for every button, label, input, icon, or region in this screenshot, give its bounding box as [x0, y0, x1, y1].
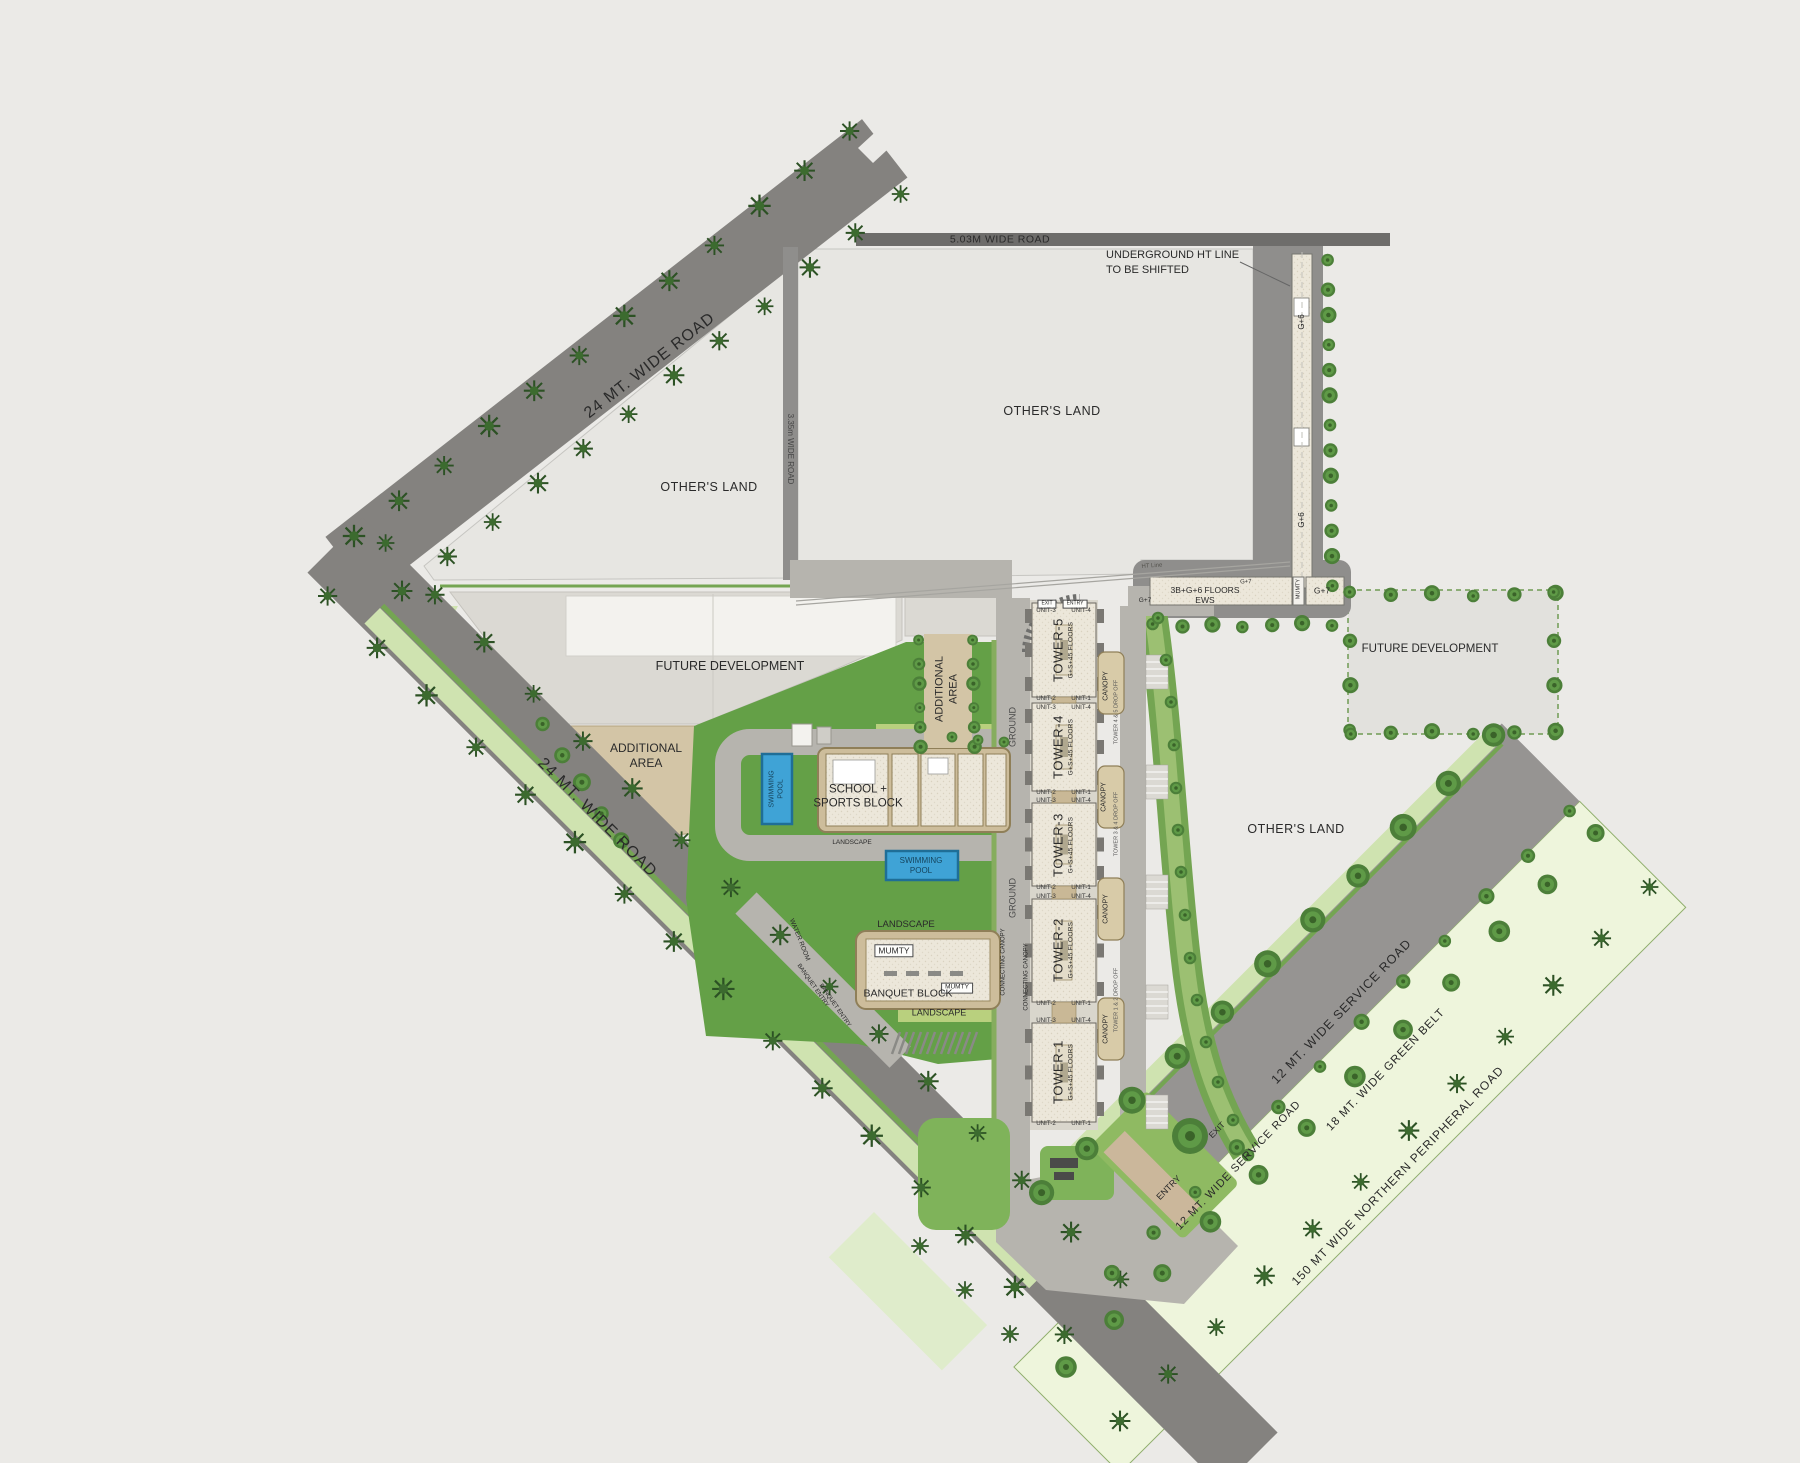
palm-tree-icon: [969, 1124, 987, 1142]
connecting-canopy-label: CONNECTING CANOPY: [1000, 928, 1008, 995]
tower-wing: [1025, 838, 1032, 852]
tower-wing: [1025, 740, 1032, 754]
tower-floors: G+S+45 FLOORS: [1068, 922, 1076, 979]
school-label: SCHOOL + SPORTS BLOCK: [813, 783, 902, 812]
tree-icon: [1055, 1356, 1077, 1378]
g7-box-label: G+7: [1314, 586, 1330, 597]
palm-tree-icon: [528, 473, 549, 494]
tree-icon: [1321, 283, 1335, 297]
tower-name: TOWER-2: [1050, 918, 1066, 982]
ground-label: GROUND: [1007, 707, 1018, 747]
palm-tree-icon: [955, 1225, 976, 1246]
tree-icon: [1179, 909, 1192, 922]
unit-label: UNIT-2: [1036, 695, 1056, 703]
ground-label: GROUND: [1007, 878, 1018, 918]
additional-area-mid-label: ADDITIONAL AREA: [933, 656, 961, 722]
tree-icon: [1507, 587, 1521, 601]
tree-icon: [1300, 907, 1325, 932]
future-development-right-parcel: [1348, 590, 1558, 734]
banquet-roof-mark: [950, 971, 963, 976]
tower-label: TOWER-1 G+S+45 FLOORS: [1050, 1040, 1075, 1104]
tree-icon: [1104, 1265, 1120, 1281]
palm-tree-icon: [756, 297, 774, 315]
tree-icon: [1439, 935, 1452, 948]
tower-wing: [1025, 1102, 1032, 1116]
tree-icon: [967, 635, 978, 646]
tree-icon: [1172, 1118, 1208, 1154]
tree-icon: [1200, 1036, 1213, 1049]
tree-icon: [912, 676, 926, 690]
tree-icon: [1324, 419, 1337, 432]
g6-lower-label: G+6: [1297, 512, 1307, 527]
tree-icon: [1249, 1165, 1269, 1185]
palm-tree-icon: [1001, 1325, 1019, 1343]
tree-icon: [1119, 1087, 1146, 1114]
palm-tree-icon: [574, 439, 593, 458]
tree-icon: [1170, 782, 1183, 795]
palm-tree-icon: [840, 121, 859, 140]
unit-label: UNIT-1: [1071, 1120, 1091, 1128]
utility-building: [792, 724, 812, 746]
tree-icon: [1467, 590, 1480, 603]
tree-icon: [1211, 1001, 1234, 1024]
tower-name: TOWER-3: [1050, 813, 1066, 877]
palm-tree-icon: [573, 732, 592, 751]
tree-icon: [1200, 1211, 1222, 1233]
tree-icon: [973, 735, 984, 746]
tree-icon: [1354, 1014, 1370, 1030]
tree-icon: [1324, 524, 1338, 538]
tower-label: TOWER-4 G+S+45 FLOORS: [1050, 715, 1075, 779]
dropoff-34-label: TOWER 3 & 4 DROP OFF: [1114, 792, 1121, 857]
additional-area-left-label: ADDITIONAL AREA: [610, 741, 682, 771]
palm-tree-icon: [1012, 1171, 1031, 1190]
tower-wing: [1025, 771, 1032, 785]
palm-tree-icon: [435, 456, 454, 475]
tower-wing: [1025, 709, 1032, 723]
tower-label: TOWER-2 G+S+45 FLOORS: [1050, 918, 1075, 982]
g7-left-label: G+7: [1139, 597, 1151, 605]
mumty-label: MUMTY: [874, 944, 913, 957]
tree-icon: [1204, 616, 1220, 632]
tree-icon: [1384, 726, 1398, 740]
pool-horizontal-label: SWIMMING POOL: [900, 856, 943, 876]
tree-icon: [1227, 1114, 1240, 1127]
south-lawn-pocket: [918, 1118, 1010, 1230]
future-dev-left-label: FUTURE DEVELOPMENT: [656, 659, 805, 675]
tree-icon: [1029, 1180, 1054, 1205]
canopy-label: CANOPY: [1103, 894, 1112, 924]
tree-icon: [1507, 725, 1521, 739]
palm-tree-icon: [800, 257, 821, 278]
tree-icon: [1424, 585, 1440, 601]
tower-wing: [1097, 1102, 1104, 1116]
landscape-label: LANDSCAPE: [912, 1007, 967, 1018]
tower-wing: [1025, 609, 1032, 623]
banquet-roof-mark: [928, 971, 941, 976]
road-503m-label: 5.03M WIDE ROAD: [950, 233, 1050, 246]
palm-tree-icon: [613, 305, 635, 327]
tower-label: TOWER-5 G+S+45 FLOORS: [1050, 618, 1075, 682]
others-land-left-label: OTHER'S LAND: [660, 480, 757, 496]
unit-label: UNIT-1: [1071, 789, 1091, 797]
play-equipment: [1054, 1172, 1074, 1180]
tree-icon: [1482, 723, 1505, 746]
unit-label: UNIT-1: [1071, 695, 1091, 703]
palm-tree-icon: [377, 534, 395, 552]
palm-tree-icon: [425, 585, 444, 604]
palm-tree-icon: [622, 778, 643, 799]
palm-tree-icon: [525, 685, 543, 703]
g6-upper-label: G+6: [1297, 314, 1307, 329]
others-land-top-label: OTHER'S LAND: [1003, 404, 1100, 420]
unit-label: UNIT-4: [1071, 607, 1091, 615]
tree-icon: [1236, 621, 1249, 634]
tower-wing: [1097, 944, 1104, 958]
parking-bay: [1146, 875, 1168, 909]
canopy-label: CANOPY: [1101, 782, 1110, 812]
tower-wing: [1097, 838, 1104, 852]
landscape-label: LANDSCAPE: [832, 839, 871, 847]
road-335m-label: 3.35m WIDE ROAD: [785, 414, 795, 485]
tree-icon: [1165, 696, 1178, 709]
tower-floors: G+S+45 FLOORS: [1068, 1044, 1076, 1101]
palm-tree-icon: [710, 331, 729, 350]
tree-icon: [1320, 307, 1336, 323]
ews-mumty-label: MUMTY: [1296, 579, 1303, 599]
palm-tree-icon: [892, 185, 910, 203]
tree-icon: [1104, 1310, 1124, 1330]
palm-tree-icon: [1641, 878, 1659, 896]
unit-label: UNIT-3: [1036, 704, 1056, 712]
g7-small-label: G+7: [1240, 579, 1252, 587]
tree-icon: [1160, 654, 1173, 667]
unit-label: UNIT-4: [1071, 797, 1091, 805]
unit-label: UNIT-1: [1071, 884, 1091, 892]
unit-label: UNIT-4: [1071, 893, 1091, 901]
tree-icon: [1146, 1225, 1160, 1239]
landscape-label: LANDSCAPE: [877, 919, 935, 931]
ews-block-label: 3B+G+6 FLOORS EWS: [1171, 585, 1240, 605]
palm-tree-icon: [659, 270, 680, 291]
dropoff-12-label: TOWER 1 & 2 DROP OFF: [1114, 968, 1121, 1033]
parking-bay: [1146, 1095, 1168, 1129]
tree-icon: [968, 702, 979, 713]
tree-icon: [1323, 443, 1337, 457]
road-503m: [856, 233, 1390, 246]
unit-label: UNIT-2: [1036, 1000, 1056, 1008]
tree-icon: [1326, 619, 1339, 632]
palm-tree-icon: [1543, 975, 1564, 996]
tree-icon: [914, 702, 925, 713]
tree-icon: [1478, 888, 1494, 904]
banquet-roof-mark: [884, 971, 897, 976]
unit-label: UNIT-2: [1036, 789, 1056, 797]
canopy-label: CANOPY: [1103, 1014, 1112, 1044]
palm-tree-icon: [812, 1078, 833, 1099]
tree-icon: [1343, 634, 1357, 648]
palm-tree-icon: [318, 586, 337, 605]
tree-icon: [947, 732, 958, 743]
tree-icon: [1323, 338, 1336, 351]
palm-tree-icon: [956, 1281, 974, 1299]
palm-tree-icon: [663, 931, 684, 952]
tree-icon: [1321, 254, 1334, 267]
tower-label: TOWER-3 G+S+45 FLOORS: [1050, 813, 1075, 877]
tree-icon: [1322, 387, 1338, 403]
tree-icon: [1184, 952, 1197, 965]
palm-tree-icon: [705, 236, 724, 255]
palm-tree-icon: [615, 884, 634, 903]
tree-icon: [1314, 1060, 1327, 1073]
parking-bay: [1146, 985, 1168, 1019]
tree-icon: [1254, 950, 1281, 977]
unit-label: UNIT-1: [1071, 1000, 1091, 1008]
tree-icon: [1424, 723, 1440, 739]
unit-label: UNIT-4: [1071, 704, 1091, 712]
tree-icon: [1175, 619, 1189, 633]
tree-icon: [1547, 586, 1560, 599]
tower-floors: G+S+45 FLOORS: [1068, 622, 1076, 679]
pool-vertical-label: SWIMMING POOL: [768, 770, 786, 807]
unit-label: UNIT-3: [1036, 607, 1056, 615]
tower-wing: [1025, 643, 1032, 657]
banquet-label: BANQUET BLOCK: [863, 987, 952, 1000]
palm-tree-icon: [770, 924, 791, 945]
palm-tree-icon: [918, 1071, 939, 1092]
tree-icon: [1396, 974, 1410, 988]
tree-icon: [1212, 1076, 1225, 1089]
utility-building: [817, 727, 831, 744]
tree-icon: [554, 747, 570, 763]
tower-wing: [1097, 982, 1104, 996]
tower-wing: [1097, 1066, 1104, 1080]
tree-icon: [1322, 363, 1336, 377]
tower-floors: G+S+45 FLOORS: [1068, 719, 1076, 776]
tower-wing: [1025, 677, 1032, 691]
school-roof-detail: [833, 760, 875, 784]
palm-tree-icon: [564, 831, 586, 853]
tower-wing: [1025, 809, 1032, 823]
canopy-label: CANOPY: [1103, 671, 1112, 701]
dropoff-45-label: TOWER 4 & 5 DROP OFF: [1114, 680, 1121, 745]
palm-tree-icon: [794, 160, 815, 181]
tree-icon: [1345, 728, 1358, 741]
tree-icon: [1538, 874, 1558, 894]
tower-floors: G+S+45 FLOORS: [1068, 817, 1076, 874]
play-equipment: [1050, 1158, 1078, 1168]
tree-icon: [1436, 771, 1461, 796]
palm-tree-icon: [570, 346, 589, 365]
tree-icon: [1075, 1137, 1098, 1160]
palm-tree-icon: [712, 978, 734, 1000]
unit-label: UNIT-2: [1036, 1120, 1056, 1128]
tree-icon: [1153, 1264, 1171, 1282]
unit-label: UNIT-3: [1036, 1017, 1056, 1025]
ht-line-label: HT Line: [1141, 563, 1162, 572]
palm-tree-icon: [524, 380, 545, 401]
palm-tree-icon: [478, 415, 500, 437]
tree-icon: [1175, 866, 1188, 879]
tree-icon: [914, 721, 927, 734]
school-block-4: [958, 754, 983, 826]
palm-tree-icon: [763, 1031, 782, 1050]
palm-tree-icon: [911, 1237, 929, 1255]
tree-icon: [535, 717, 549, 731]
palm-tree-icon: [748, 195, 770, 217]
tree-icon: [913, 740, 927, 754]
palm-tree-icon: [1061, 1222, 1082, 1243]
unit-label: UNIT-2: [1036, 884, 1056, 892]
tower-wing: [1097, 740, 1104, 754]
palm-tree-icon: [1496, 1028, 1514, 1046]
palm-tree-icon: [620, 405, 638, 423]
palm-tree-icon: [474, 632, 495, 653]
tower-name: TOWER-4: [1050, 715, 1066, 779]
palm-tree-icon: [1352, 1173, 1370, 1191]
palm-tree-icon: [912, 1178, 931, 1197]
palm-tree-icon: [1110, 1411, 1131, 1432]
tree-icon: [1346, 864, 1369, 887]
tree-icon: [1191, 994, 1204, 1007]
tree-icon: [913, 658, 926, 671]
palm-tree-icon: [721, 878, 740, 897]
tree-icon: [1152, 612, 1165, 625]
unit-label: UNIT-3: [1036, 797, 1056, 805]
tree-icon: [1298, 1119, 1316, 1137]
connecting-canopy-label: CONNECTING CANOPY: [1023, 943, 1031, 1010]
underground-ht-note: UNDERGROUND HT LINE TO BE SHIFTED: [1106, 248, 1239, 279]
tower-name: TOWER-1: [1050, 1040, 1066, 1104]
tree-icon: [1324, 548, 1340, 564]
tower-wing: [1025, 1066, 1032, 1080]
tree-icon: [1342, 677, 1358, 693]
palm-tree-icon: [1254, 1265, 1275, 1286]
palm-tree-icon: [1398, 1120, 1419, 1141]
palm-tree-icon: [1159, 1364, 1178, 1383]
sports-roof-detail: [928, 758, 948, 774]
tree-icon: [1521, 849, 1535, 863]
tree-icon: [1442, 974, 1460, 992]
tree-icon: [1323, 468, 1339, 484]
palm-tree-icon: [415, 684, 437, 706]
palm-tree-icon: [1592, 929, 1611, 948]
palm-tree-icon: [466, 738, 485, 757]
tree-icon: [968, 721, 981, 734]
palm-tree-icon: [392, 581, 413, 602]
palm-tree-icon: [846, 223, 865, 242]
tree-icon: [1384, 588, 1398, 602]
tree-icon: [1294, 615, 1310, 631]
palm-tree-icon: [1055, 1325, 1074, 1344]
unit-label: UNIT-4: [1071, 1017, 1091, 1025]
tree-icon: [1390, 814, 1417, 841]
tree-icon: [1168, 739, 1181, 752]
tree-icon: [1265, 618, 1279, 632]
palm-tree-icon: [515, 784, 536, 805]
tower-wing: [1025, 905, 1032, 919]
tree-icon: [1563, 805, 1576, 818]
tree-icon: [966, 676, 980, 690]
tower-name: TOWER-5: [1050, 618, 1066, 682]
tree-icon: [1546, 677, 1562, 693]
palm-tree-icon: [1207, 1318, 1225, 1336]
school-block-5: [986, 754, 1006, 826]
tree-icon: [967, 658, 980, 671]
tree-icon: [913, 635, 924, 646]
palm-tree-icon: [673, 831, 691, 849]
tree-icon: [1467, 728, 1480, 741]
unit-label: UNIT-3: [1036, 893, 1056, 901]
palm-tree-icon: [1303, 1219, 1322, 1238]
palm-tree-icon: [1447, 1074, 1466, 1093]
palm-tree-icon: [861, 1125, 883, 1147]
palm-tree-icon: [367, 637, 388, 658]
palm-tree-icon: [438, 547, 457, 566]
palm-tree-icon: [869, 1024, 888, 1043]
tower-wing: [1097, 609, 1104, 623]
site-master-plan: 5.03M WIDE ROAD UNDERGROUND HT LINE TO B…: [0, 0, 1800, 1463]
site-plan-graphic: [0, 0, 1800, 1463]
tree-icon: [1489, 920, 1511, 942]
tree-icon: [1165, 1044, 1190, 1069]
tree-icon: [1325, 499, 1338, 512]
tower-wing: [1025, 866, 1032, 880]
palm-tree-icon: [664, 365, 685, 386]
others-land-right-label: OTHER'S LAND: [1247, 822, 1344, 838]
palm-tree-icon: [1004, 1276, 1026, 1298]
tree-icon: [1343, 586, 1356, 599]
palm-tree-icon: [484, 513, 502, 531]
palm-tree-icon: [343, 525, 365, 547]
parking-bay: [1146, 765, 1168, 799]
tree-icon: [1548, 723, 1564, 739]
future-building-footprint: [566, 596, 896, 656]
tree-icon: [1587, 824, 1605, 842]
future-dev-right-label: FUTURE DEVELOPMENT: [1362, 642, 1499, 656]
banquet-roof-mark: [906, 971, 919, 976]
palm-tree-icon: [389, 490, 410, 511]
tower-wing: [1025, 1029, 1032, 1043]
tree-icon: [1547, 634, 1561, 648]
tree-icon: [1172, 824, 1185, 837]
